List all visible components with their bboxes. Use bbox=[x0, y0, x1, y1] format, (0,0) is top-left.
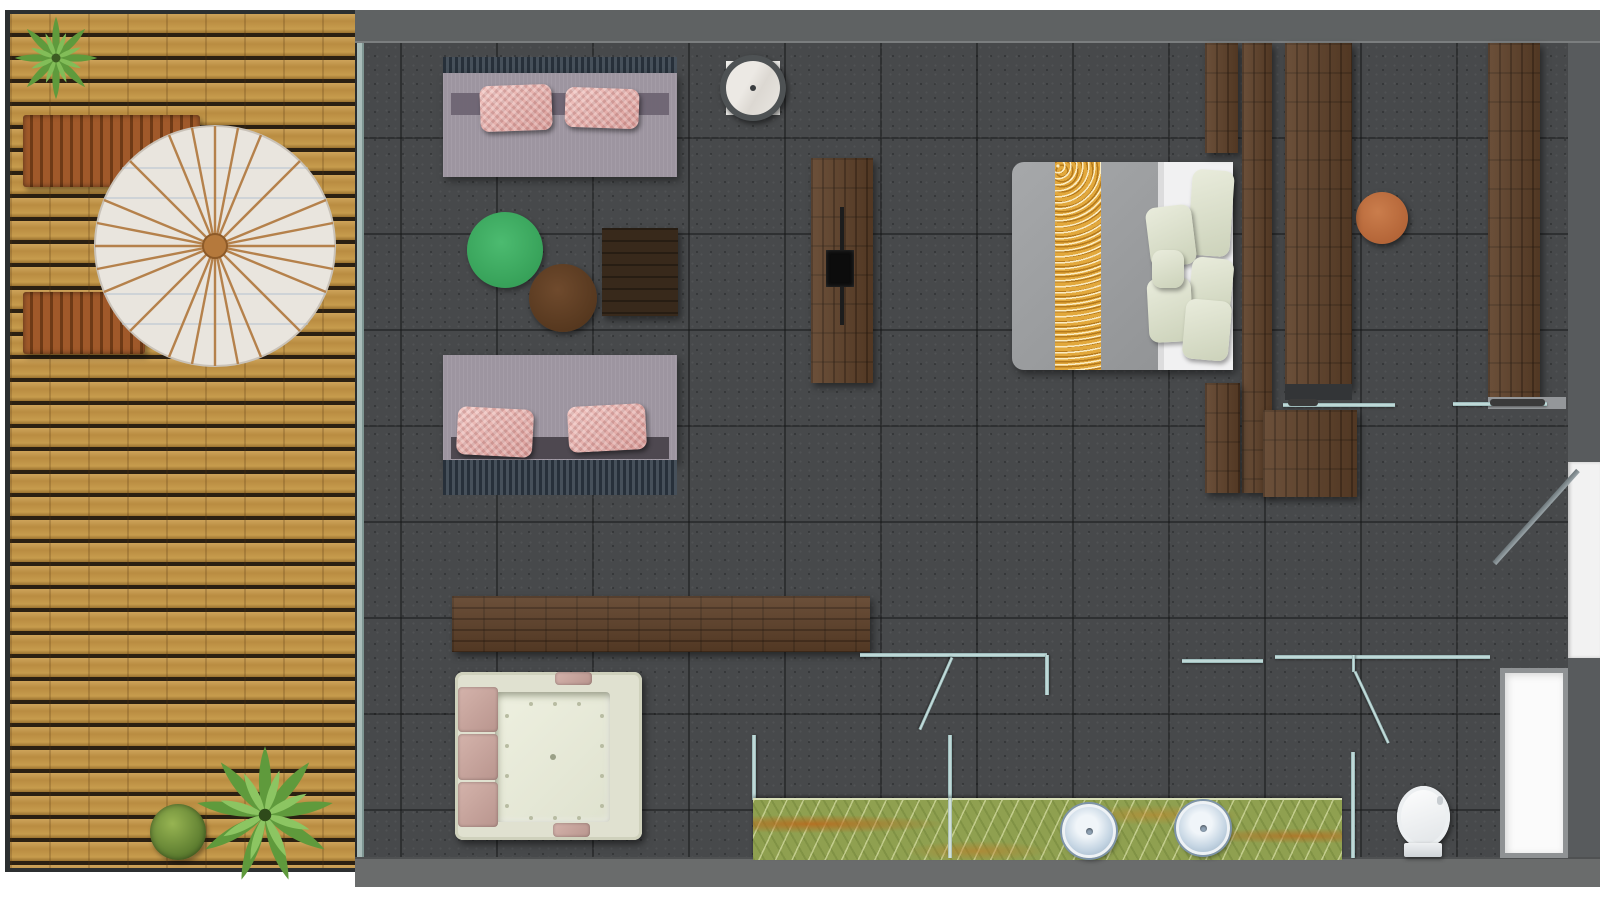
bed-runner bbox=[1055, 162, 1101, 370]
tv-screen bbox=[826, 250, 854, 287]
bed-pillow bbox=[1181, 298, 1232, 362]
toilet bbox=[1397, 786, 1450, 858]
jacuzzi-headrest bbox=[555, 672, 592, 685]
shrub-round bbox=[150, 804, 206, 860]
jacuzzi-headrest bbox=[553, 823, 590, 837]
pillow bbox=[479, 84, 553, 132]
wardrobe-column-right bbox=[1488, 43, 1540, 397]
round-green-rug bbox=[467, 212, 543, 288]
pillow bbox=[567, 403, 647, 453]
vanity-counter bbox=[753, 798, 1342, 860]
wall-top bbox=[355, 10, 1600, 43]
pillow bbox=[456, 406, 534, 458]
jacuzzi-drain bbox=[550, 754, 556, 760]
shower-niche bbox=[1500, 668, 1568, 858]
marble-side-table bbox=[716, 51, 790, 125]
square-side-table bbox=[602, 228, 678, 316]
wardrobe-column bbox=[1285, 43, 1352, 388]
sliding-glass-panel bbox=[1275, 655, 1490, 659]
shelf-handle bbox=[1288, 399, 1318, 406]
entry-door-opening bbox=[1568, 462, 1600, 658]
wardrobe-column bbox=[1205, 383, 1240, 493]
wardrobe-column bbox=[1263, 410, 1357, 497]
pillow bbox=[564, 87, 639, 130]
wall-bottom bbox=[355, 857, 1600, 887]
sink-right bbox=[1176, 801, 1230, 855]
tv-partition bbox=[811, 158, 873, 383]
shelf-handle bbox=[1490, 399, 1545, 406]
glass-partition bbox=[860, 653, 1047, 657]
jacuzzi-step bbox=[458, 734, 498, 780]
jacuzzi-jets bbox=[505, 714, 509, 718]
vanity-divider bbox=[948, 798, 952, 858]
glass-partition bbox=[1045, 655, 1049, 695]
jacuzzi-step bbox=[458, 782, 498, 827]
sofa-lower bbox=[443, 355, 677, 495]
jacuzzi-step bbox=[458, 687, 498, 732]
toilet-flush-button bbox=[1437, 796, 1443, 805]
parasol-umbrella bbox=[92, 123, 338, 369]
glass-partition bbox=[948, 735, 952, 800]
wall-right-upper bbox=[1568, 43, 1600, 462]
wardrobe-column bbox=[1205, 43, 1238, 153]
stool-round bbox=[1356, 192, 1408, 244]
plant-top-left bbox=[13, 15, 99, 101]
storage-console bbox=[452, 596, 870, 652]
glass-partition bbox=[1351, 752, 1355, 858]
double-bed bbox=[1012, 162, 1233, 370]
wardrobe-edge bbox=[1285, 384, 1352, 400]
ottoman-round bbox=[529, 264, 597, 332]
jacuzzi-tub bbox=[455, 672, 642, 840]
wall-right-lower bbox=[1568, 658, 1600, 857]
glass-partition bbox=[1352, 655, 1355, 672]
toilet-tank bbox=[1404, 843, 1442, 857]
plant-bottom bbox=[193, 743, 337, 887]
bed-pillow bbox=[1152, 250, 1184, 288]
glass-wall-left bbox=[355, 43, 364, 857]
sofa-upper bbox=[443, 57, 677, 177]
sliding-glass-panel bbox=[1182, 659, 1263, 663]
sink-left bbox=[1062, 804, 1116, 858]
glass-partition bbox=[752, 735, 756, 800]
floor-plan bbox=[0, 0, 1600, 900]
